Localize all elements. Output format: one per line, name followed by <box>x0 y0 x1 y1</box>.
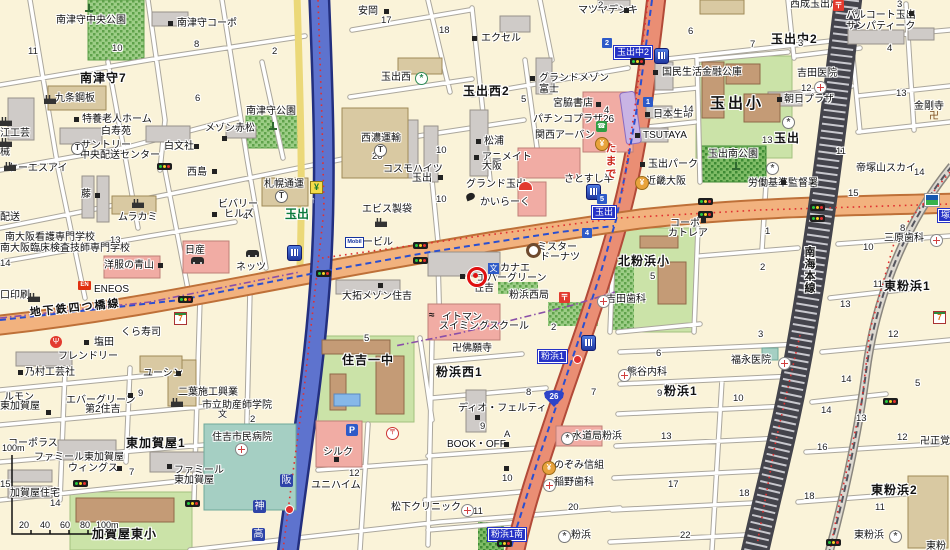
mobil-icon: Mobil <box>345 237 364 248</box>
bsq-icon <box>472 36 477 41</box>
bsq-icon <box>74 117 79 122</box>
map-label-100m: 100m <box>2 444 25 453</box>
factory-icon <box>171 398 183 407</box>
car-icon <box>246 250 259 257</box>
map-label-3: 3 <box>897 0 902 10</box>
bsq-icon <box>777 97 782 102</box>
map-label-ムラカミ: ムラカミ <box>118 213 158 223</box>
map-label-10: 10 <box>112 44 123 54</box>
map-label-10: 10 <box>733 394 744 404</box>
postcircle-icon: 〒 <box>386 427 399 440</box>
map-label-14: 14 <box>914 168 925 178</box>
bsq-icon <box>460 274 465 279</box>
map-label-17: 17 <box>668 480 679 490</box>
famima-icon <box>925 194 939 206</box>
map-label-玉出: 玉出 <box>592 206 616 219</box>
map-label-南津守7: 南津守7 <box>80 72 127 84</box>
map-label-14: 14 <box>683 105 694 115</box>
map-label-5: 5 <box>364 334 369 344</box>
exit-icon: 2 <box>602 38 612 48</box>
circ-icon: * <box>766 162 779 175</box>
circ-icon: * <box>558 530 571 543</box>
map-label-玉出: 玉出 <box>774 132 800 144</box>
eneos-icon: EN <box>78 281 91 290</box>
target-marker <box>467 267 487 287</box>
circ-icon: * <box>889 530 902 543</box>
bsq-icon <box>504 442 509 447</box>
bsq-icon <box>653 70 658 75</box>
map-label-松下クリニック: 松下クリニック <box>391 503 461 513</box>
map-label-関西アーバン: 関西アーバン <box>535 131 595 141</box>
map-label-13: 13 <box>896 89 907 99</box>
bsq-icon <box>194 144 199 149</box>
map-label-近畿大阪: 近畿大阪 <box>646 177 686 187</box>
map-label-11: 11 <box>28 47 38 57</box>
map-label-60: 60 <box>60 521 70 530</box>
med-icon <box>618 369 631 382</box>
map-label-中央配送センター: 中央配送センター <box>80 151 160 161</box>
map-label-第2住吉: 第2住吉 <box>85 405 121 415</box>
map-label-安岡: 安岡 <box>358 7 378 17</box>
map-label-12: 12 <box>897 433 908 443</box>
map-label-20: 20 <box>568 503 579 513</box>
map-label-富士: 富士 <box>539 85 559 95</box>
map-label-玉出小: 玉出小 <box>710 96 764 111</box>
truckcircle-icon: T <box>275 190 288 203</box>
map-label-A: A <box>504 430 510 440</box>
map-label-東粉浜: 東粉浜 <box>854 531 884 541</box>
map-label-18: 18 <box>439 26 450 36</box>
map-label-18: 18 <box>804 492 815 502</box>
map-label-22: 22 <box>680 531 691 541</box>
map-label-10: 10 <box>436 195 447 205</box>
map-label-ヒルズ: ヒルズ <box>224 210 254 220</box>
map-label-ケーエスアイ: ケーエスアイ <box>8 164 68 174</box>
map-label-東加賀屋: 東加賀屋 <box>174 476 214 486</box>
map-label-帝塚山スカイ: 帝塚山スカイ <box>856 164 916 174</box>
arrow-icon: ↑ <box>311 196 316 205</box>
traffic-icon <box>883 398 898 405</box>
map-label-地下鉄四つ橋線: 地下鉄四つ橋線 <box>29 299 121 319</box>
map-label-ービル: ービル <box>363 238 393 248</box>
map-label-かいらーく: かいらーく <box>480 198 530 208</box>
med-icon <box>930 234 943 247</box>
traffic-icon <box>497 540 512 547</box>
bsq-icon <box>909 11 914 16</box>
bsq-icon <box>167 464 172 469</box>
map-label-国民生活金融公庫: 国民生活金融公庫 <box>662 68 742 78</box>
map-label-のぞみ信組: のぞみ信組 <box>554 461 604 471</box>
map-label-BOOK・OFF: BOOK・OFF <box>447 440 506 450</box>
bsq-icon <box>640 162 645 167</box>
map-label-ENEOS: ENEOS <box>94 285 129 295</box>
bsq-icon <box>378 283 383 288</box>
bunW-icon: 文 <box>218 410 227 419</box>
seven-icon: 7 <box>174 312 187 325</box>
bank-icon: ¥ <box>635 176 649 190</box>
map-label-8: 8 <box>194 40 199 50</box>
map-label-2: 2 <box>598 1 603 11</box>
map-label-13: 13 <box>110 236 121 246</box>
reddot-icon <box>285 505 294 514</box>
map-label-洋服の青山: 洋服の青山 <box>104 261 154 271</box>
bsq-icon <box>476 139 481 144</box>
map-label-粉浜1: 粉浜1 <box>664 385 698 397</box>
map-label-14: 14 <box>821 406 832 416</box>
bird-icon <box>465 192 476 202</box>
factory-icon <box>28 293 40 302</box>
route-26-shield: 26 <box>544 390 564 407</box>
map-label-松浦: 松浦 <box>484 137 504 147</box>
fountain-icon <box>731 161 741 170</box>
map-label-7: 7 <box>129 468 134 478</box>
map-label-16: 16 <box>817 443 828 453</box>
map-label-8: 8 <box>900 224 905 234</box>
map-label-玉出パーク: 玉出パーク <box>648 160 698 170</box>
exit-icon: 1 <box>643 97 653 107</box>
map-label-札幌通運: 札幌通運 <box>264 180 304 190</box>
bsq-icon <box>530 76 535 81</box>
map-label-スイミングスクール: スイミングスクール <box>439 322 529 332</box>
map-label-東粉浜1: 東粉浜1 <box>884 280 931 292</box>
donut-icon <box>526 243 541 258</box>
map-label-15: 15 <box>0 480 11 490</box>
bank-icon: ¥ <box>595 137 609 151</box>
map-label-13: 13 <box>840 300 851 310</box>
map-label-10: 10 <box>502 474 513 484</box>
map-label-白寿苑: 白寿苑 <box>101 127 131 137</box>
factory-icon <box>132 199 144 208</box>
map-label-17: 17 <box>381 16 392 26</box>
map-label-藤: 藤 <box>81 190 91 200</box>
nursery-icon: * <box>415 72 428 85</box>
traffic-icon <box>630 58 645 65</box>
bsq-icon <box>212 169 217 174</box>
map-label-塚: 塚 <box>938 209 950 222</box>
map-label-3: 3 <box>798 39 803 49</box>
map-label-15: 15 <box>848 189 859 199</box>
map-label-北粉浜小: 北粉浜小 <box>618 255 670 267</box>
map-label-11: 11 <box>873 280 883 290</box>
bsq-icon <box>474 155 479 160</box>
factory-icon <box>375 218 387 227</box>
circ-icon: * <box>782 116 795 129</box>
traffic-icon <box>698 198 713 205</box>
bsq-icon <box>438 175 443 180</box>
med-icon <box>778 357 791 370</box>
map-label-100m: 100m <box>96 521 119 530</box>
bunB-icon: 文 <box>488 263 499 274</box>
map-label-9: 9 <box>480 422 485 432</box>
map-label-ドーナツ: ドーナツ <box>540 253 580 263</box>
circ-icon: * <box>561 432 574 445</box>
map-label-西島: 西島 <box>187 168 207 178</box>
med-icon <box>814 81 827 94</box>
bsq-icon <box>18 370 23 375</box>
traffic-icon <box>185 500 200 507</box>
map-label-エクセル: エクセル <box>481 34 521 44</box>
map-label-玉出西2: 玉出西2 <box>463 85 510 97</box>
map-label-神: 神 <box>253 500 266 513</box>
car-icon <box>191 257 204 264</box>
swim-icon: ≈ <box>429 311 435 321</box>
yen-icon: ¥ <box>310 181 323 194</box>
map-label-マツヤデンキ: マツヤデンキ <box>578 6 638 16</box>
map-label-カトレア: カトレア <box>668 229 708 239</box>
map-label-パルコート玉出: パルコート玉出 <box>846 11 916 21</box>
factory-icon <box>0 138 12 147</box>
bsq-icon <box>635 133 640 138</box>
subway-station-icon <box>287 245 302 261</box>
traffic-icon <box>316 270 331 277</box>
map-label-6: 6 <box>688 27 693 37</box>
bsq-icon <box>701 218 706 223</box>
map-label-4: 4 <box>604 106 609 116</box>
subway-station-icon <box>654 48 669 64</box>
map-label-大拓メゾン住吉: 大拓メゾン住吉 <box>342 292 412 302</box>
bsq-icon <box>158 263 163 268</box>
map-label-グランドメゾン: グランドメゾン <box>539 74 609 84</box>
traffic-icon <box>178 296 193 303</box>
map-label-九条鋼板: 九条鋼板 <box>55 94 95 104</box>
traffic-icon <box>413 257 428 264</box>
map-label-玉出中2: 玉出中2 <box>771 33 818 45</box>
bsq-icon <box>176 371 181 376</box>
map-label-フレンドリー: フレンドリー <box>58 352 118 362</box>
traffic-icon <box>157 163 172 170</box>
manji-icon: 卍 <box>929 112 939 122</box>
map-label-東加賀屋: 東加賀屋 <box>0 402 40 412</box>
bsq-icon <box>95 193 100 198</box>
map-label-11: 11 <box>836 147 846 157</box>
map-label-20: 20 <box>19 521 29 530</box>
seven-icon: 7 <box>933 311 946 324</box>
map-label-阪: 阪 <box>280 474 293 487</box>
map-label-東加賀屋1: 東加賀屋1 <box>126 437 186 449</box>
factory-icon <box>0 117 12 126</box>
exit-icon: 4 <box>582 228 592 238</box>
bsq-icon <box>645 112 650 117</box>
map-label-吉田医院: 吉田医院 <box>797 69 837 79</box>
bsq-icon <box>84 340 89 345</box>
map-label-三原歯科: 三原歯科 <box>884 234 924 244</box>
map-label-玉出: 玉出 <box>412 174 432 184</box>
map-label-白文社: 白文社 <box>164 142 194 152</box>
postbox-icon: 〒 <box>559 292 570 303</box>
map-label-5: 5 <box>521 95 526 105</box>
med-icon <box>543 479 556 492</box>
bsq-icon <box>46 410 51 415</box>
map-label-7: 7 <box>750 40 755 50</box>
map-label-6: 6 <box>656 349 661 359</box>
map-label-14: 14 <box>0 259 11 269</box>
map-label-南津守中央公園: 南津守中央公園 <box>56 16 126 26</box>
map-label-熊谷内科: 熊谷内科 <box>627 368 667 378</box>
traffic-icon <box>413 242 428 249</box>
map-label-14: 14 <box>841 375 852 385</box>
map-label-口印刷: 口印刷 <box>0 291 30 301</box>
bsq-icon <box>128 393 133 398</box>
bsq-icon <box>781 180 786 185</box>
map-label-14: 14 <box>50 499 61 509</box>
map-label-9: 9 <box>657 389 662 399</box>
map-label-13: 13 <box>856 414 867 424</box>
map-label-ファミール東加賀屋: ファミール東加賀屋 <box>34 453 124 463</box>
map-label-吉田歯科: 吉田歯科 <box>606 295 646 305</box>
map-label-40: 40 <box>40 521 50 530</box>
map-label-10: 10 <box>436 146 447 156</box>
exit-icon: 5 <box>597 194 607 204</box>
map-label-西濃運輸: 西濃運輸 <box>361 134 401 144</box>
map-label-械: 械 <box>0 148 10 158</box>
map-label-塩田: 塩田 <box>94 338 114 348</box>
traffic-icon <box>810 204 825 211</box>
map-label-配送: 配送 <box>0 213 20 223</box>
map-label-粉浜西1: 粉浜西1 <box>436 366 483 378</box>
reddot-icon <box>573 355 582 364</box>
map-label-8: 8 <box>526 388 531 398</box>
truckcircle-icon: T <box>374 144 387 157</box>
med-icon <box>597 295 610 308</box>
map-label-11: 11 <box>875 503 885 513</box>
map-label-粉浜: 粉浜 <box>571 531 591 541</box>
map-label-江工芸: 江工芸 <box>0 129 30 139</box>
bsq-icon <box>475 415 480 420</box>
map-label-5: 5 <box>915 379 920 389</box>
map-label-グランド玉出: グランド玉出 <box>466 180 526 190</box>
bsq-icon <box>596 102 601 107</box>
map-label-玉出: 玉出 <box>285 208 309 220</box>
map-label-エビス製袋: エビス製袋 <box>362 205 412 215</box>
map-label-5: 5 <box>650 272 655 282</box>
map-label-玉出西: 玉出西 <box>381 73 411 83</box>
traffic-icon <box>73 480 88 487</box>
map-label-7: 7 <box>591 388 596 398</box>
bsq-icon <box>624 8 629 13</box>
map-label-サンパティーク: サンパティーク <box>846 22 915 32</box>
map-label-1: 1 <box>765 227 770 237</box>
map-label-13: 13 <box>762 136 773 146</box>
map-label-南津守公園: 南津守公園 <box>246 107 296 117</box>
map-label-18: 18 <box>739 489 750 499</box>
map-label-福永医院: 福永医院 <box>731 356 771 366</box>
map-label-2: 2 <box>272 47 277 57</box>
map-label-粉浜西局: 粉浜西局 <box>509 291 549 301</box>
bank-icon: ¥ <box>542 461 556 475</box>
map-label-4: 4 <box>243 212 248 222</box>
map-label-ウィングス: ウィングス <box>68 464 118 474</box>
map-overlay-layer: 南津守7玉出西2玉出中2玉出小北粉浜小住吉一中粉浜西1東加賀屋1加賀屋東小粉浜1… <box>0 0 950 550</box>
map-label-9: 9 <box>138 389 143 399</box>
map-label-大阪: 大阪 <box>482 162 502 172</box>
map-label-12: 12 <box>349 469 360 479</box>
map-label-6: 6 <box>195 94 200 104</box>
map-label-TSUTAYA: TSUTAYA <box>643 131 687 141</box>
map-label-玉出南公園: 玉出南公園 <box>708 150 758 160</box>
map-label-粉浜1: 粉浜1 <box>538 350 567 363</box>
med-icon <box>461 504 474 517</box>
map-label-3: 3 <box>758 330 763 340</box>
map-label-特養老人ホーム: 特養老人ホーム <box>82 115 152 125</box>
bsq-icon <box>222 136 227 141</box>
map-label-南大阪看護専門学校: 南大阪看護専門学校 <box>5 233 95 243</box>
map-label-12: 12 <box>801 84 812 94</box>
map-canvas[interactable]: 南津守7玉出西2玉出中2玉出小北粉浜小住吉一中粉浜西1東加賀屋1加賀屋東小粉浜1… <box>0 0 950 550</box>
map-label-13: 13 <box>661 432 672 442</box>
truckcircle-icon: T <box>71 142 84 155</box>
map-label-10: 10 <box>863 243 874 253</box>
map-label-乃村工芸社: 乃村工芸社 <box>25 368 75 378</box>
map-label-住吉一中: 住吉一中 <box>342 354 394 366</box>
map-label-ネッツ: ネッツ <box>236 263 266 273</box>
bsq-icon <box>334 457 339 462</box>
traffic-icon <box>698 211 713 218</box>
map-label-高: 高 <box>252 528 265 541</box>
map-label-卍正覚: 卍正覚 <box>920 437 950 447</box>
map-label-くら寿司: くら寿司 <box>121 328 161 338</box>
bsq-icon <box>168 21 173 26</box>
map-label-住吉市民病院: 住吉市民病院 <box>212 433 272 443</box>
map-label-卍佛願寺: 卍佛願寺 <box>452 344 492 354</box>
map-label-市立助産師学院: 市立助産師学院 <box>202 401 272 411</box>
map-label-ユニハイム: ユニハイム <box>311 481 361 491</box>
fountain-icon <box>84 3 94 12</box>
map-label-メゾン赤松: メゾン赤松 <box>205 124 255 134</box>
map-label-11: 11 <box>473 507 483 517</box>
map-label-2: 2 <box>250 415 255 425</box>
bsq-icon <box>384 9 389 14</box>
fountain-icon <box>268 121 278 130</box>
traffic-icon <box>810 215 825 222</box>
store-icon <box>518 181 533 191</box>
map-label-東粉浜2: 東粉浜2 <box>871 484 918 496</box>
map-label-12: 12 <box>888 330 899 340</box>
map-label-朝日プラザ: 朝日プラザ <box>784 95 834 105</box>
map-label-東粉: 東粉 <box>926 542 946 550</box>
bsq-icon <box>504 466 509 471</box>
map-label-二葉施工興業: 二葉施工興業 <box>178 388 238 398</box>
subway-station-icon <box>581 335 596 351</box>
map-label-2: 2 <box>760 263 765 273</box>
map-label-2: 2 <box>551 323 556 333</box>
map-label-ディオ・フェルティ: ディオ・フェルティ <box>458 404 547 414</box>
phone-icon: ☎ <box>596 121 607 132</box>
map-label-南海本線: 南海本線 <box>803 246 814 294</box>
med-icon <box>235 443 248 456</box>
map-label-4: 4 <box>887 44 892 54</box>
map-label-80: 80 <box>80 521 90 530</box>
map-label-水道局粉浜: 水道局粉浜 <box>572 432 622 442</box>
map-label-宮脇書店: 宮脇書店 <box>553 99 593 109</box>
fork-icon: Ψ <box>50 336 62 348</box>
map-label-稲野歯科: 稲野歯科 <box>554 478 594 488</box>
traffic-icon <box>826 539 841 546</box>
bsq-icon <box>117 466 122 471</box>
bsq-icon <box>212 212 217 217</box>
postbox-icon: 〒 <box>833 0 844 11</box>
map-label-南津守コーポ: 南津守コーポ <box>177 19 237 29</box>
parking-icon: P <box>346 424 358 436</box>
map-label-日産: 日産 <box>185 246 205 256</box>
